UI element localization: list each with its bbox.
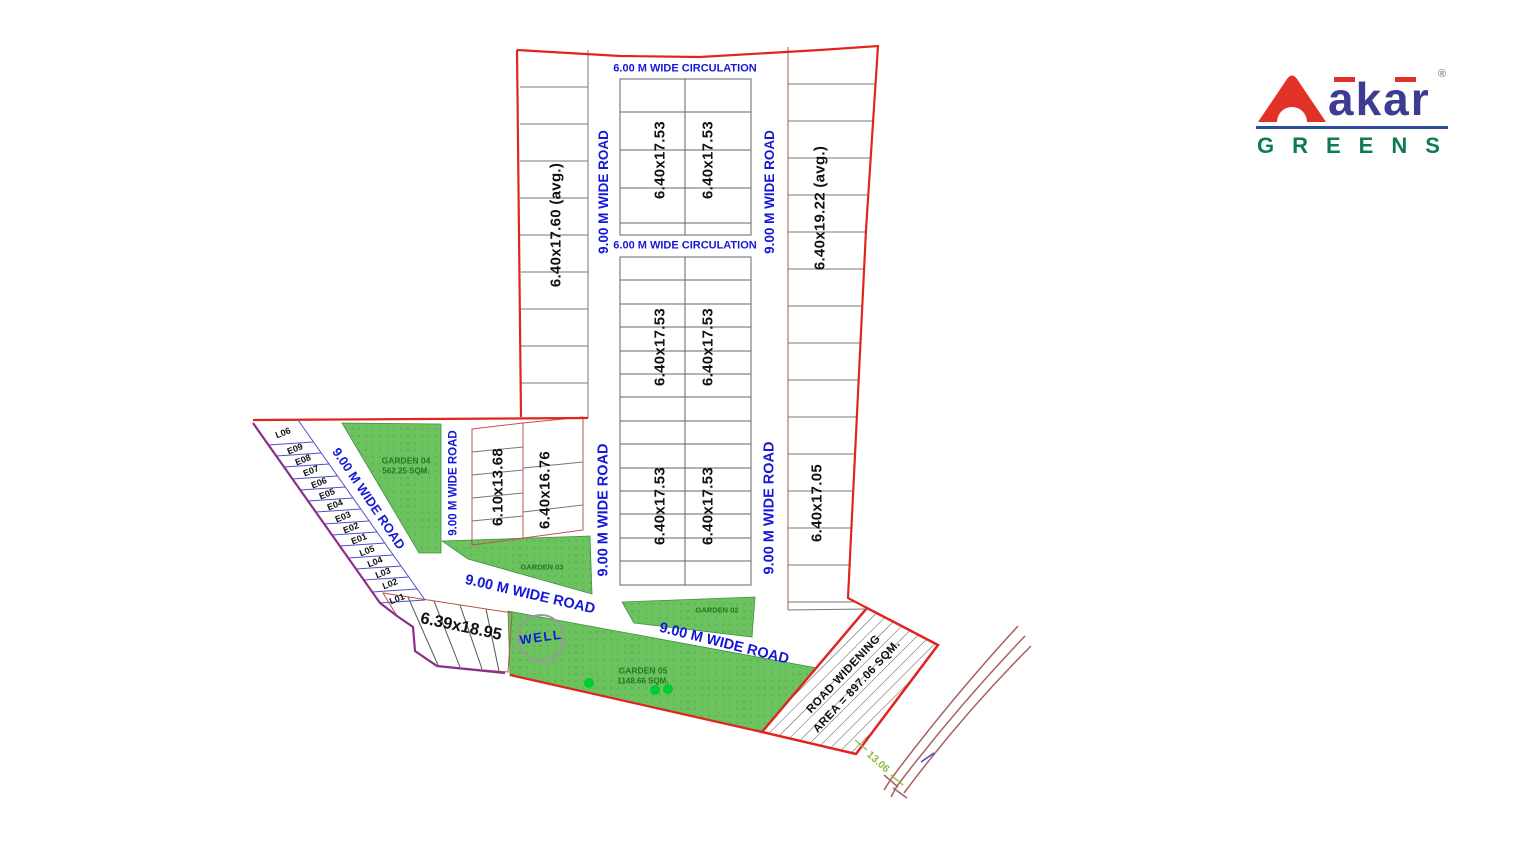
road-label-left-upper: 9.00 M WIDE ROAD bbox=[596, 130, 612, 254]
plot-dim-central-3b: 6.40x17.53 bbox=[699, 467, 716, 545]
garden-03-label: GARDEN 03 bbox=[521, 564, 564, 573]
circulation-label-top: 6.00 M WIDE CIRCULATION bbox=[613, 63, 756, 76]
plot-dim-central-3a: 6.40x17.53 bbox=[651, 467, 668, 545]
road-label-right-upper: 9.00 M WIDE ROAD bbox=[762, 130, 778, 254]
plot-dim-left-column: 6.40x17.60 (avg.) bbox=[547, 163, 564, 287]
brand-macron-1 bbox=[1334, 77, 1355, 82]
registered-mark: ® bbox=[1438, 68, 1446, 80]
brand-divider-line bbox=[1256, 126, 1448, 129]
plot-dim-right-top: 6.40x19.22 (avg.) bbox=[811, 146, 828, 270]
garden-05-label: GARDEN 05 1148.66 SQM. bbox=[617, 667, 668, 686]
brand-macron-2 bbox=[1395, 77, 1416, 82]
plot-dim-central-1b: 6.40x17.53 bbox=[699, 121, 716, 199]
logo-triangle bbox=[1258, 76, 1326, 123]
plot-dim-block-b: 6.40x16.76 bbox=[536, 451, 553, 529]
plot-dim-right-bottom: 6.40x17.05 bbox=[808, 464, 825, 542]
plot-dim-central-1a: 6.40x17.53 bbox=[651, 121, 668, 199]
plot-dim-block-a: 6.10x13.68 bbox=[489, 448, 506, 526]
garden-02-label: GARDEN 02 bbox=[696, 607, 739, 616]
central-block-upper bbox=[620, 79, 751, 235]
road-label-left-lower: 9.00 M WIDE ROAD bbox=[596, 444, 613, 577]
road-label-small-vertical: 9.00 M WIDE ROAD bbox=[447, 430, 460, 535]
site-plan-page: 6.00 M WIDE CIRCULATION 6.00 M WIDE CIRC… bbox=[0, 0, 1536, 864]
garden-04-label: GARDEN 04 562.25 SQM. bbox=[382, 457, 431, 476]
plot-dim-central-2a: 6.40x17.53 bbox=[651, 308, 668, 386]
right-column-plots bbox=[788, 47, 876, 610]
plot-dim-central-2b: 6.40x17.53 bbox=[699, 308, 716, 386]
circulation-label-mid: 6.00 M WIDE CIRCULATION bbox=[613, 240, 756, 253]
central-block-lower bbox=[620, 257, 751, 585]
road-label-right-lower: 9.00 M WIDE ROAD bbox=[762, 442, 779, 575]
brand-subtitle: GREENS bbox=[1257, 133, 1458, 159]
